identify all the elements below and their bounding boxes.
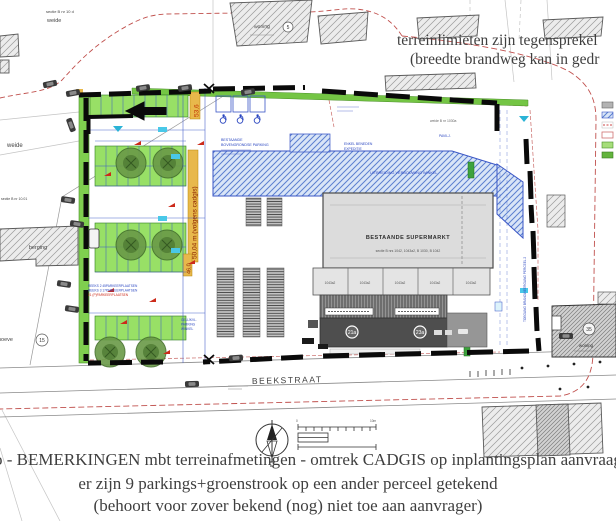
- reeks-note-1: REEKS 2 45PARKEERPLAATSEN: [88, 284, 138, 288]
- bottom-remark-line1: o - BEMERKINGEN mbt terreinafmetingen - …: [0, 450, 616, 470]
- wheelchair-icon: [237, 114, 243, 123]
- parked-car-stall: [89, 229, 99, 248]
- gelijk-note-2: PARKING: [181, 323, 196, 327]
- dim-50-04: 50,04 m (volgens cadgis): [192, 186, 199, 259]
- house-number: 5: [287, 25, 290, 31]
- parking-note-2: BOVENGRONDSE PARKING: [221, 143, 269, 147]
- scale-ten: 10m: [370, 419, 377, 423]
- uitbreiding-note: UITBREIDING VERBOUWING WINKEL: [370, 171, 438, 175]
- sectie-top-label: sectie B nr 10 d: [46, 9, 74, 14]
- gelijk-note-3: WINKEL: [181, 327, 193, 331]
- dock-b-label: 23a: [416, 330, 425, 336]
- site-plan-scan: sectie B nr 10 d weide weide sectie B nr…: [0, 0, 616, 521]
- wheelchair-icon: [254, 114, 260, 123]
- right-house-number: 35: [586, 327, 592, 333]
- blue-extension-swatch: [602, 112, 613, 118]
- light-green-swatch: [602, 142, 613, 148]
- dim-46-0: 46,0: [187, 263, 193, 274]
- enkel-note-1: ENKEL BENEDEN: [344, 142, 373, 146]
- pavilj-label: PAVILJ.: [439, 134, 451, 138]
- dim-53-6: 53,6: [194, 104, 201, 117]
- plan-canvas: sectie B nr 10 d weide weide sectie B nr…: [0, 0, 616, 521]
- parking-note-1: BESTAANDE: [221, 138, 243, 142]
- unit-cell-label: 1043a2: [325, 281, 336, 285]
- weide-left-label: weide: [6, 143, 23, 149]
- top-right-remark-line2: (breedte brandweg kan in gedr: [410, 50, 599, 69]
- handicap-stalls: [216, 96, 265, 112]
- scale-zero: 0: [296, 419, 298, 423]
- supermarket-building: [302, 193, 493, 354]
- unit-cell-label: 1043a2: [466, 281, 477, 285]
- reeks-note-2: REEKS 3 17PARKEERPLAATSEN: [88, 289, 138, 293]
- water-symbol: [113, 126, 123, 132]
- bottom-remark-line3: (behoort voor zover bekend (nog) niet to…: [0, 496, 576, 516]
- dark-green-swatch: [602, 152, 613, 158]
- toegang-note: TOEGANG BRANDWEERGANG PERCEEL 2: [523, 257, 527, 322]
- unit-cell-label: 1043a2: [395, 281, 406, 285]
- supermarket-title: BESTAANDE SUPERMARKT: [366, 235, 450, 241]
- existing-parking: [216, 96, 330, 337]
- weide-mid-label: weide B nr 1030a: [430, 119, 457, 123]
- stall-tick-blocks: [217, 198, 284, 337]
- wheelchair-icon: [220, 114, 226, 123]
- top-right-remark-line1: terreinlimieten zijn tegensprekel: [397, 31, 598, 50]
- hoeve-label: hoeve: [0, 337, 13, 343]
- unit-cell-label: 1043a2: [430, 281, 441, 285]
- legend: [602, 102, 613, 158]
- weide-top-label: weide: [46, 18, 61, 24]
- woning-top-label: woning: [254, 24, 270, 31]
- scale-bar: [298, 424, 376, 450]
- supermarket-subtitle: sectie B nrs 1042, 1043a2, B 1030, B 104…: [376, 249, 441, 253]
- existing-building-swatch: [602, 102, 613, 108]
- gelijk-note-1: GELIJKVL.: [181, 318, 197, 322]
- woning-right-label: woning: [579, 343, 594, 348]
- berging-label: berging: [29, 245, 47, 251]
- unit-cell-label: 1043a2: [360, 281, 371, 285]
- street-name: BEEKSTRAAT: [252, 374, 323, 386]
- dock-a-label: 21a: [348, 330, 357, 336]
- sectie-left-label: sectie B nr 10.01: [1, 197, 27, 201]
- parking-stall-rows: [90, 95, 188, 340]
- water-symbol: [519, 116, 529, 122]
- farm-number: 15: [39, 338, 45, 344]
- reeks-note-3: 21 (P)PARKEERPLAATSEN: [88, 293, 129, 297]
- stall-dividers: [95, 95, 186, 340]
- bottom-remark-line2: er zijn 9 parkings+groenstrook op een an…: [0, 474, 576, 494]
- parcel-outline-swatch: [602, 132, 613, 138]
- dark-service-strip: [320, 318, 447, 347]
- enkel-note-2: EXPEDITIE: [344, 147, 362, 151]
